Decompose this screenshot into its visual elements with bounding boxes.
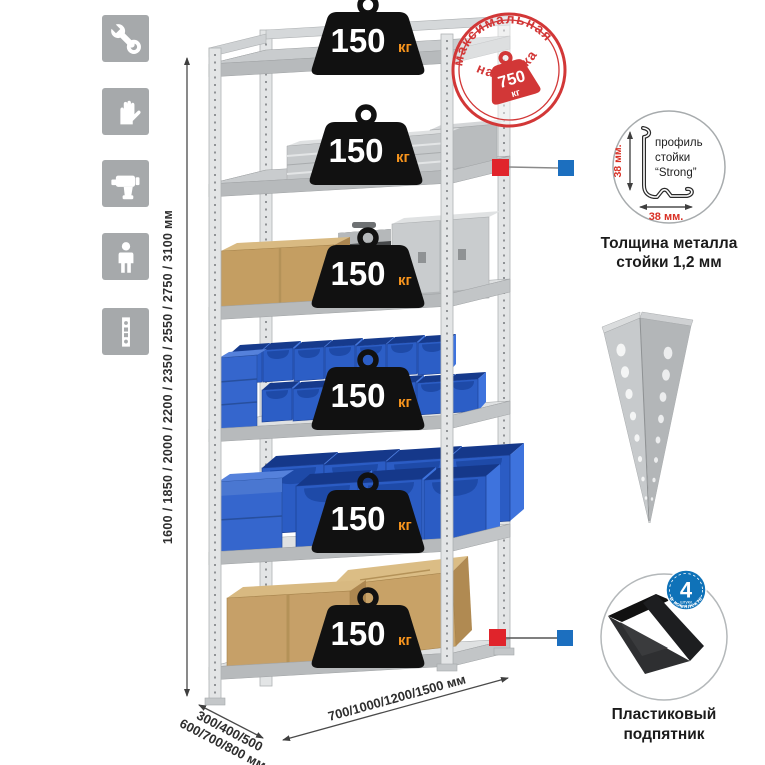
load-badge-value: 150 <box>328 132 383 169</box>
load-badge-shelf-2: 150 кг <box>310 107 423 185</box>
load-badge-value: 150 <box>330 22 385 59</box>
width-dimension: 700/1000/1200/1500 мм <box>283 671 508 740</box>
callout-red-square <box>492 159 509 176</box>
foot-count-badge: 4 штуки в комплекте <box>666 570 706 610</box>
callout-foot <box>489 629 573 646</box>
upright-front-left <box>209 48 221 702</box>
profile-caption-line2: стойки 1,2 мм <box>616 254 721 271</box>
profile-detail: 38 мм. 38 мм. профиль стойки “Strong” <box>612 111 725 223</box>
load-badge-value: 150 <box>330 377 385 414</box>
load-badge-shelf-1: 150 кг <box>312 0 425 75</box>
foot-plate <box>494 648 514 655</box>
product-infographic: 150 кг 150 кг 150 кг 150 кг 150 кг 150 к… <box>0 0 765 765</box>
load-badge-unit: кг <box>398 632 412 649</box>
load-badge-value: 150 <box>330 255 385 292</box>
load-badge-value: 150 <box>330 615 385 652</box>
foot-plate <box>437 664 457 671</box>
callout-profile <box>492 159 574 176</box>
height-dimension: 1600 / 1850 / 2000 / 2200 / 2350 / 2550 … <box>161 58 187 696</box>
corner-post-illustration <box>602 312 693 523</box>
foot-plate <box>205 698 225 705</box>
profile-label-3: “Strong” <box>655 167 697 179</box>
load-badge-unit: кг <box>398 272 412 289</box>
callout-blue-square <box>557 630 573 646</box>
profile-label-1: профиль <box>655 137 703 149</box>
load-badge-unit: кг <box>398 394 412 411</box>
callout-red-square <box>489 629 506 646</box>
callout-blue-square <box>558 160 574 176</box>
load-badge-unit: кг <box>396 149 410 166</box>
foot-caption-line2: подпятник <box>623 726 704 743</box>
load-badge-unit: кг <box>398 39 412 56</box>
profile-caption-line1: Толщина металла <box>601 235 738 252</box>
width-dimension-label: 700/1000/1200/1500 мм <box>326 671 467 723</box>
upright-front-right <box>441 34 453 668</box>
shelving-unit <box>205 16 524 705</box>
storage-bin <box>448 372 486 413</box>
load-badge-value: 150 <box>330 500 385 537</box>
foot-detail <box>601 574 727 700</box>
height-dimension-label: 1600 / 1850 / 2000 / 2200 / 2350 / 2550 … <box>161 210 175 544</box>
infographic-canvas: 150 кг 150 кг 150 кг 150 кг 150 кг 150 к… <box>0 0 765 765</box>
foot-caption-line1: Пластиковый <box>612 706 717 723</box>
depth-dimension: 300/400/500 600/700/800 мм <box>177 702 275 765</box>
profile-label-2: стойки <box>655 152 690 164</box>
load-badge-unit: кг <box>398 517 412 534</box>
profile-dim-horizontal: 38 мм. <box>649 211 684 223</box>
profile-dim-vertical: 38 мм. <box>612 144 624 177</box>
